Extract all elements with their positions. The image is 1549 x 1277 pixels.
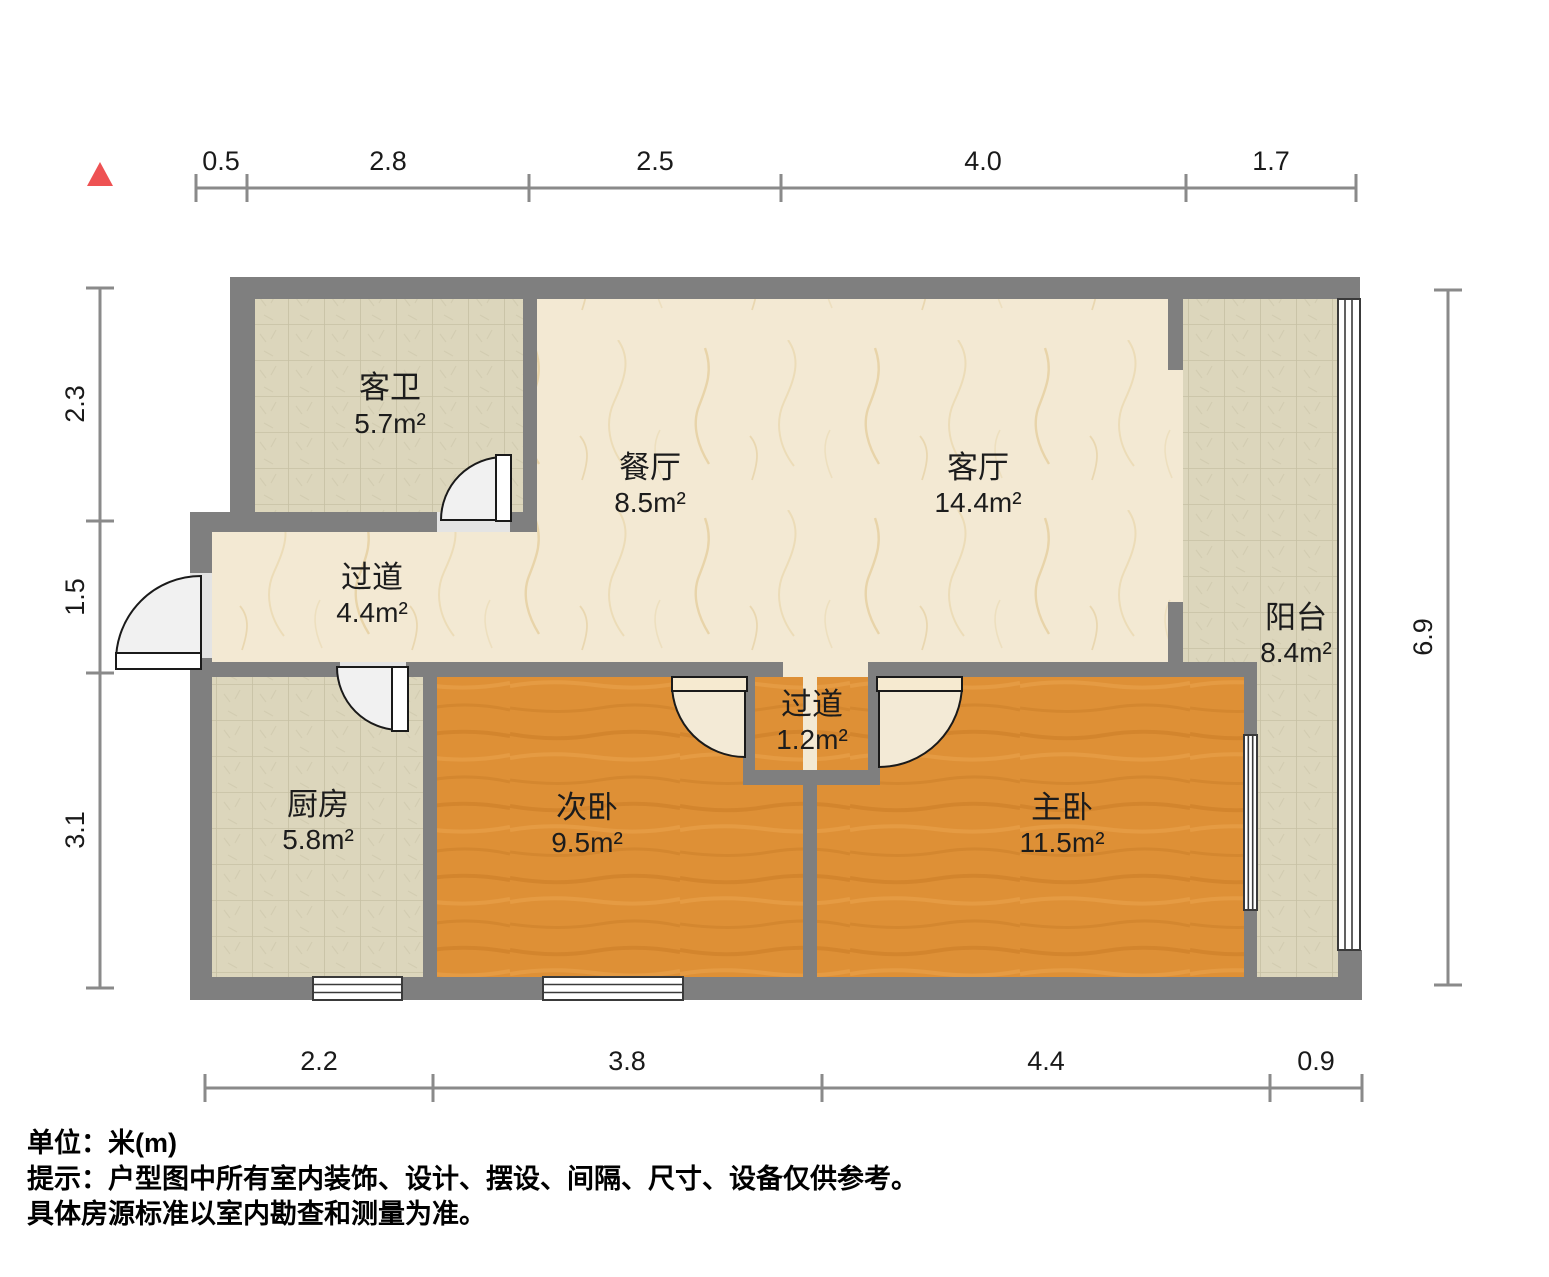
north-marker-icon [87, 162, 113, 186]
wall-kitchen-top-a [209, 662, 340, 677]
svg-text:6.9: 6.9 [1408, 618, 1438, 656]
note-unit: 单位：米(m) [27, 1127, 177, 1158]
svg-text:8.5m²: 8.5m² [614, 487, 686, 518]
label-second-bedroom: 次卧 9.5m² [551, 790, 623, 858]
svg-text:4.0: 4.0 [964, 146, 1002, 176]
svg-text:2.5: 2.5 [636, 146, 674, 176]
svg-text:过道: 过道 [781, 687, 843, 722]
floor-plan-page: 客卫 5.7m² 餐厅 8.5m² 客厅 14.4m² 过道 4.4m² 阳台 … [0, 0, 1549, 1277]
floor-plan-svg: 客卫 5.7m² 餐厅 8.5m² 客厅 14.4m² 过道 4.4m² 阳台 … [0, 0, 1549, 1277]
wall-bedroom-top-b [868, 662, 1257, 677]
svg-text:9.5m²: 9.5m² [551, 827, 623, 858]
label-dining-room: 餐厅 8.5m² [614, 450, 686, 518]
svg-text:4.4: 4.4 [1027, 1046, 1065, 1076]
dimension-left: 2.3 1.5 3.1 [60, 288, 114, 988]
wall-balcony-corner [1338, 950, 1362, 977]
svg-text:2.3: 2.3 [60, 385, 90, 423]
wall-inner-hall-bottom [743, 770, 880, 785]
wall-balcony-stub-top [1168, 299, 1183, 370]
svg-text:阳台: 阳台 [1265, 600, 1327, 635]
master-bedroom-window [1244, 735, 1257, 910]
svg-text:客卫: 客卫 [359, 370, 421, 405]
svg-text:厨房: 厨房 [287, 787, 349, 822]
floor-balcony-lower [1257, 663, 1338, 977]
svg-text:5.7m²: 5.7m² [354, 408, 426, 439]
svg-text:1.2m²: 1.2m² [776, 724, 848, 755]
wall-bedroom-divider [803, 785, 817, 977]
svg-text:1.5: 1.5 [60, 578, 90, 616]
label-kitchen: 厨房 5.8m² [282, 787, 354, 855]
label-balcony: 阳台 8.4m² [1260, 600, 1332, 668]
dimension-bottom: 2.2 3.8 4.4 0.9 [205, 1046, 1362, 1102]
dimension-right: 6.9 [1408, 290, 1462, 985]
svg-text:2.8: 2.8 [369, 146, 407, 176]
second-bedroom-window [543, 977, 683, 1000]
svg-text:3.8: 3.8 [608, 1046, 646, 1076]
svg-text:餐厅: 餐厅 [619, 450, 681, 485]
label-hallway: 过道 4.4m² [336, 560, 408, 628]
note-tip-line2: 具体房源标准以室内勘查和测量为准。 [27, 1198, 486, 1229]
svg-text:4.4m²: 4.4m² [336, 597, 408, 628]
wall-left-lower [190, 658, 212, 1000]
balcony-window [1338, 299, 1360, 950]
wall-left-upper [230, 277, 255, 532]
svg-text:14.4m²: 14.4m² [934, 487, 1021, 518]
label-guest-bathroom: 客卫 5.7m² [354, 370, 426, 439]
svg-text:3.1: 3.1 [60, 811, 90, 849]
label-inner-hallway: 过道 1.2m² [776, 687, 848, 755]
wall-balcony-stub-bottom [1168, 602, 1183, 663]
label-living-room: 客厅 14.4m² [934, 450, 1021, 518]
entrance-door [116, 576, 201, 669]
dimension-top: 0.5 2.8 2.5 4.0 1.7 [196, 146, 1356, 202]
wall-bedroom-top-a [406, 662, 783, 677]
wall-top [230, 277, 1360, 299]
svg-text:过道: 过道 [341, 560, 403, 595]
wall-bath-dining [523, 299, 537, 532]
wall-master-right-lower [1244, 910, 1257, 977]
wall-master-right-upper [1244, 677, 1257, 735]
svg-text:8.4m²: 8.4m² [1260, 637, 1332, 668]
wall-kitchen-bedroom [423, 662, 437, 977]
svg-text:次卧: 次卧 [556, 790, 618, 825]
svg-text:11.5m²: 11.5m² [1019, 827, 1104, 858]
svg-text:2.2: 2.2 [300, 1046, 338, 1076]
svg-text:0.5: 0.5 [202, 146, 240, 176]
svg-text:0.9: 0.9 [1297, 1046, 1335, 1076]
label-master-bedroom: 主卧 11.5m² [1019, 790, 1104, 858]
kitchen-window [313, 977, 402, 1000]
svg-text:1.7: 1.7 [1252, 146, 1290, 176]
svg-text:主卧: 主卧 [1031, 790, 1093, 825]
svg-text:客厅: 客厅 [947, 450, 1009, 485]
svg-text:5.8m²: 5.8m² [282, 824, 354, 855]
notes-layer: 单位：米(m) 提示：户型图中所有室内装饰、设计、摆设、间隔、尺寸、设备仅供参考… [27, 1127, 918, 1229]
note-tip-line1: 提示：户型图中所有室内装饰、设计、摆设、间隔、尺寸、设备仅供参考。 [27, 1163, 918, 1194]
wall-left-entry-upper [190, 512, 212, 573]
